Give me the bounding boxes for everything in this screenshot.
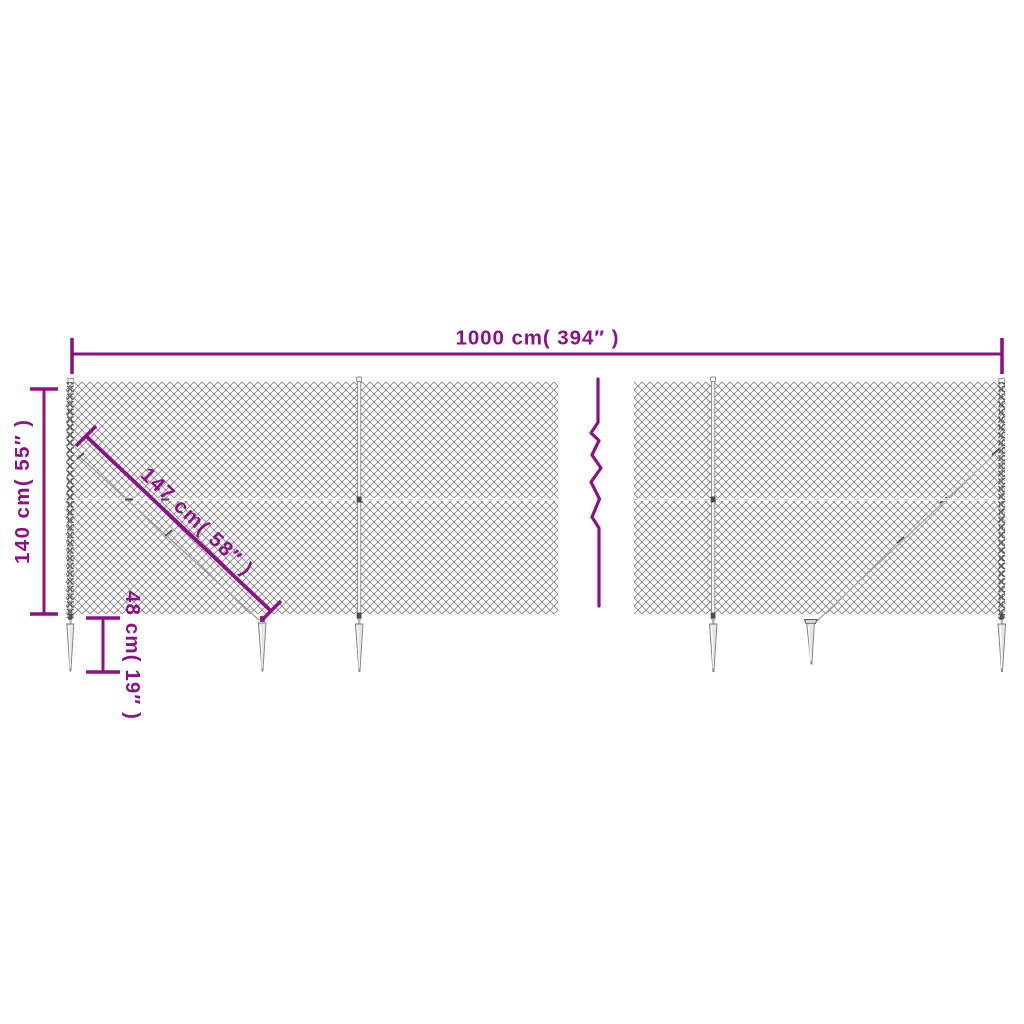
svg-text:1000 cm( 394″ ): 1000 cm( 394″ ) <box>456 327 619 350</box>
svg-text:48 cm( 19″ ): 48 cm( 19″ ) <box>121 591 144 719</box>
svg-text:140 cm( 55″ ): 140 cm( 55″ ) <box>11 420 34 564</box>
